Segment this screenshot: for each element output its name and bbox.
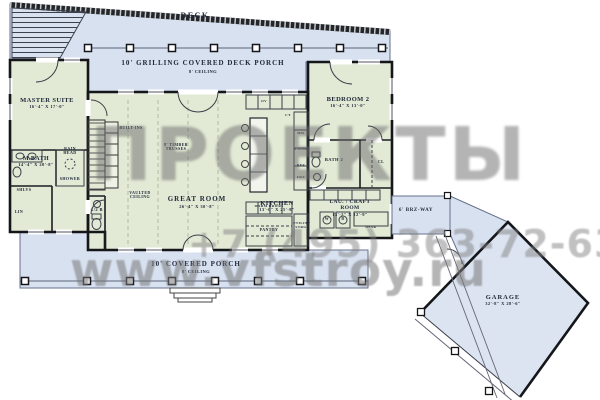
shower-label: SHOWER bbox=[60, 177, 80, 181]
shelves-label: SHLVS bbox=[17, 188, 32, 192]
garage-dims: 32'-8" X 28'-6" bbox=[485, 302, 521, 307]
breezeway-label: 6' BRZ-WAY bbox=[399, 208, 433, 214]
built-ins-label: BUILT-INS bbox=[119, 126, 142, 130]
great-room-label: GREAT ROOM bbox=[168, 196, 227, 204]
garage-area bbox=[415, 222, 588, 400]
utility-storage-label: UTILITY STRG bbox=[293, 222, 309, 230]
bath2-label: BATH 2 bbox=[325, 158, 343, 163]
front-steps bbox=[170, 288, 220, 302]
rain-head-label: RAIN HEAD bbox=[60, 147, 80, 156]
great-room-dims: 26'-4" X 30'-8" bbox=[179, 205, 215, 210]
floor-plan-drawing bbox=[0, 0, 600, 400]
microwave-label: MW bbox=[297, 132, 305, 136]
washer-label: W bbox=[325, 217, 329, 221]
grilling-porch-label: 10' GRILLING COVERED DECK PORCH bbox=[121, 60, 284, 68]
cooktop-label: CT bbox=[285, 114, 291, 118]
grilling-porch-ceiling: 8' CEILING bbox=[189, 70, 217, 75]
front-porch-label: 10' COVERED PORCH bbox=[151, 261, 241, 269]
warm-drawers-label: WARM DRWRS bbox=[254, 205, 283, 209]
half-bath-label: 1/2 B bbox=[91, 208, 103, 213]
floor-plan-image: DECK 10' GRILLING COVERED DECK PORCH 8' … bbox=[0, 0, 600, 400]
bedroom2-dims: 16'-4" X 13'-0" bbox=[330, 104, 366, 109]
oven-label: OV bbox=[261, 100, 267, 104]
desk-label: DESK bbox=[365, 226, 376, 230]
stairs bbox=[88, 120, 105, 190]
vaulted-ceiling-label: VAULTED CEILING bbox=[126, 191, 154, 200]
kitchen-island bbox=[250, 118, 267, 192]
timber-trusses-label: 8' TIMBER TRUSSES bbox=[160, 143, 192, 152]
sink-label: D.SINK bbox=[294, 148, 308, 152]
front-porch-ceiling: 8' CEILING bbox=[182, 270, 210, 275]
linen-label: LIN bbox=[15, 210, 23, 214]
deck-label: DECK bbox=[180, 12, 209, 21]
freezer-label: FRZ bbox=[297, 176, 305, 180]
m-bath-dims: 14'-4" X 20'-8" bbox=[18, 163, 54, 168]
closet-label: CL bbox=[378, 160, 384, 164]
fridge-label: REF bbox=[297, 164, 305, 168]
dryer-label: D bbox=[341, 217, 344, 221]
pantry-label: PANTRY bbox=[260, 228, 279, 232]
built-ins-cabinet bbox=[105, 122, 118, 188]
laundry-label: LAU. / CRAFT ROOM bbox=[324, 199, 376, 211]
laundry-dims: 13'-2" X 12'-9" bbox=[332, 213, 368, 218]
master-suite-dims: 16'-4" X 17'-0" bbox=[29, 105, 65, 110]
